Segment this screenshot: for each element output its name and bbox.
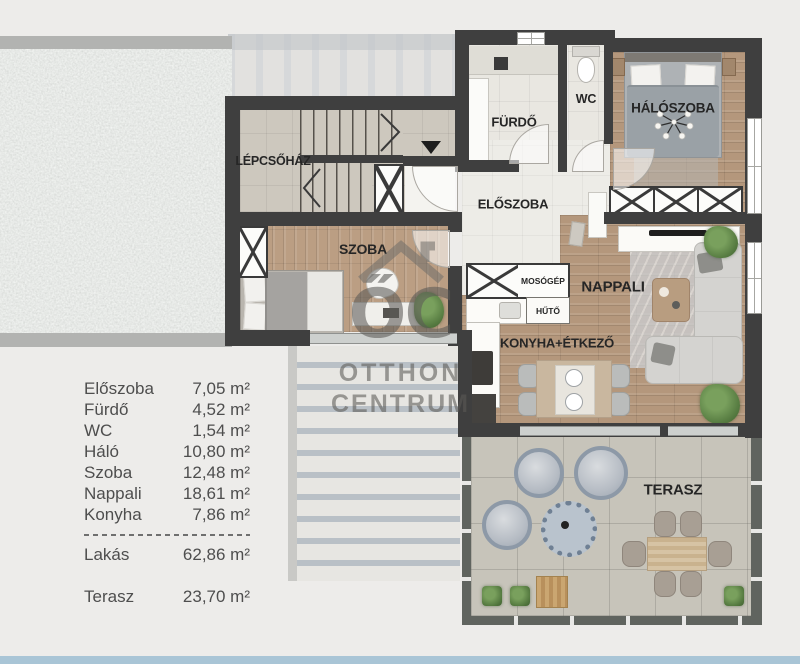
elevator-x-icon bbox=[376, 166, 402, 214]
terrace-chair bbox=[680, 511, 702, 537]
terrace-chair bbox=[654, 571, 676, 597]
terrace-railing-left bbox=[462, 433, 471, 625]
livingroom-window bbox=[747, 242, 762, 314]
room-label-konyha-etkezo: KONYHA+ÉTKEZŐ bbox=[500, 336, 614, 351]
wall-bath-wc-divider bbox=[558, 44, 567, 140]
nightstand bbox=[722, 58, 736, 76]
terrace-chair bbox=[654, 511, 676, 537]
wall-bedroom-bottom bbox=[604, 212, 745, 224]
terrace-chair bbox=[708, 541, 732, 567]
livingroom-plant-top bbox=[704, 226, 738, 258]
legend-value: 4,52 m² bbox=[192, 399, 250, 420]
szoba-bed bbox=[240, 270, 344, 334]
fridge-box: HŰTŐ bbox=[526, 297, 570, 324]
coffee-table-item bbox=[659, 287, 669, 297]
terrace-wood-mat bbox=[536, 576, 568, 608]
wc-cistern bbox=[572, 46, 600, 57]
fridge-label: HŰTŐ bbox=[536, 306, 560, 316]
gravel-area bbox=[0, 36, 232, 347]
laptop bbox=[383, 308, 399, 318]
stair-flight-up bbox=[300, 110, 403, 155]
livingroom-plant-bottom bbox=[700, 384, 740, 424]
shower-fixture bbox=[494, 57, 508, 70]
closet-x-icon bbox=[468, 265, 520, 297]
legend-label: Előszoba bbox=[84, 378, 154, 399]
adjacent-unit-fade-overlay bbox=[228, 34, 460, 100]
dining-table bbox=[536, 360, 612, 418]
room-label-eloszoba: ELŐSZOBA bbox=[478, 197, 549, 212]
room-label-haloszoba: HÁLÓSZOBA bbox=[631, 101, 715, 116]
legend-row: WC1,54 m² bbox=[84, 420, 250, 441]
legend-separator bbox=[84, 534, 250, 536]
legend-total-row: Lakás62,86 m² bbox=[84, 544, 250, 565]
legend-label: Nappali bbox=[84, 483, 142, 504]
wardrobe-x-icon bbox=[240, 228, 266, 276]
room-label-nappali: NAPPALI bbox=[581, 279, 644, 296]
legend-label: Terasz bbox=[84, 586, 134, 607]
adjacent-unit-faded bbox=[228, 34, 460, 100]
tv-screen bbox=[649, 230, 707, 236]
beanbag bbox=[574, 446, 628, 500]
legend-value: 10,80 m² bbox=[183, 441, 250, 462]
legend-label: Szoba bbox=[84, 462, 132, 483]
wall-wc-bottom bbox=[558, 140, 567, 172]
kitchen-sink bbox=[499, 302, 521, 319]
plate bbox=[565, 393, 583, 411]
szoba-wardrobe bbox=[238, 226, 268, 278]
stair-arrow-down-icon bbox=[300, 165, 322, 210]
wall-bath-left bbox=[455, 30, 469, 172]
terrace-railing-right bbox=[751, 433, 762, 625]
legend-row: Konyha7,86 m² bbox=[84, 504, 250, 525]
cooktop bbox=[471, 351, 493, 385]
legend-row: Nappali18,61 m² bbox=[84, 483, 250, 504]
terrace-plant bbox=[482, 586, 502, 606]
legend-row: Háló10,80 m² bbox=[84, 441, 250, 462]
bathroom-vanity bbox=[468, 78, 489, 162]
wall-stair-top bbox=[225, 96, 457, 110]
legend-value: 18,61 m² bbox=[183, 483, 250, 504]
bed-duvet bbox=[265, 272, 309, 331]
room-label-furdo: FÜRDŐ bbox=[491, 115, 536, 130]
wall-szoba-right-upper bbox=[448, 212, 462, 232]
terrace-sliding-door bbox=[520, 426, 660, 436]
bedroom-window bbox=[747, 118, 762, 214]
wall-stair-mid bbox=[300, 155, 403, 163]
legend-label: Lakás bbox=[84, 544, 129, 565]
beanbag bbox=[482, 500, 532, 550]
bed-headboard bbox=[625, 53, 721, 62]
washing-machine-label: MOSÓGÉP bbox=[521, 276, 565, 286]
stair-arrow-up-icon bbox=[379, 110, 403, 155]
legend-row: Szoba12,48 m² bbox=[84, 462, 250, 483]
legend-terrace-row: Terasz23,70 m² bbox=[84, 586, 250, 607]
legend-value: 7,05 m² bbox=[192, 378, 250, 399]
szoba-balcony-window bbox=[310, 333, 457, 344]
entrance-arrow-icon bbox=[421, 141, 441, 154]
shower-area bbox=[468, 46, 558, 75]
terrace-round-rug bbox=[541, 501, 597, 557]
room-label-wc: WC bbox=[576, 92, 596, 106]
wall-kitchen-left bbox=[458, 330, 472, 433]
wall-szoba-bottom bbox=[225, 330, 310, 346]
terrace-plant bbox=[724, 586, 744, 606]
legend-label: Konyha bbox=[84, 504, 142, 525]
wall-entry bbox=[403, 156, 457, 166]
beanbag bbox=[514, 448, 564, 498]
gravel-texture bbox=[0, 49, 232, 333]
legend-label: WC bbox=[84, 420, 112, 441]
terrace-chair bbox=[680, 571, 702, 597]
washing-machine-closet bbox=[466, 263, 522, 299]
bath-window bbox=[517, 32, 545, 45]
legend-label: Fürdő bbox=[84, 399, 128, 420]
sofa-pillow bbox=[650, 342, 676, 366]
wall-wc-bedroom-divider bbox=[604, 44, 613, 144]
legend-value: 23,70 m² bbox=[183, 586, 250, 607]
room-label-lepcsohaz: LÉPCSŐHÁZ bbox=[235, 154, 310, 168]
legend-label: Háló bbox=[84, 441, 119, 462]
szoba-plant bbox=[414, 292, 444, 328]
bed-pillow bbox=[243, 274, 267, 302]
legend-row: Előszoba7,05 m² bbox=[84, 378, 250, 399]
wall-bedroom-top bbox=[604, 38, 762, 52]
floorplan-image: MOSÓGÉP HŰTŐ bbox=[0, 0, 800, 664]
bottom-accent-strip bbox=[0, 656, 800, 664]
terrace-table bbox=[647, 537, 707, 571]
wall-stair-bottom bbox=[225, 212, 455, 226]
washing-machine-label-box: MOSÓGÉP bbox=[518, 263, 570, 299]
lower-balcony-edge bbox=[288, 346, 297, 581]
kitchen-counter-top bbox=[466, 296, 528, 324]
terrace-plant bbox=[510, 586, 530, 606]
legend-row: Fürdő4,52 m² bbox=[84, 399, 250, 420]
room-label-szoba: SZOBA bbox=[339, 241, 387, 257]
stair-flight-down bbox=[300, 163, 372, 212]
nightstand bbox=[612, 58, 625, 76]
legend-value: 1,54 m² bbox=[192, 420, 250, 441]
wc-toilet bbox=[577, 57, 595, 83]
elevator-shaft bbox=[374, 164, 404, 216]
legend-value: 12,48 m² bbox=[183, 462, 250, 483]
terrace-window bbox=[668, 426, 738, 436]
bed-blanket bbox=[307, 272, 342, 331]
coffee-table-item bbox=[672, 301, 680, 309]
plate bbox=[565, 369, 583, 387]
bed-pillow bbox=[243, 302, 267, 330]
legend-value: 62,86 m² bbox=[183, 544, 250, 565]
rug-center-dot bbox=[561, 521, 569, 529]
terrace-railing-bottom bbox=[462, 616, 762, 625]
terrace-chair bbox=[622, 541, 646, 567]
lower-balcony-faded bbox=[288, 346, 460, 581]
room-label-terasz: TERASZ bbox=[644, 482, 703, 499]
area-legend: Előszoba7,05 m² Fürdő4,52 m² WC1,54 m² H… bbox=[84, 378, 250, 607]
coffee-table bbox=[652, 278, 690, 322]
legend-value: 7,86 m² bbox=[192, 504, 250, 525]
